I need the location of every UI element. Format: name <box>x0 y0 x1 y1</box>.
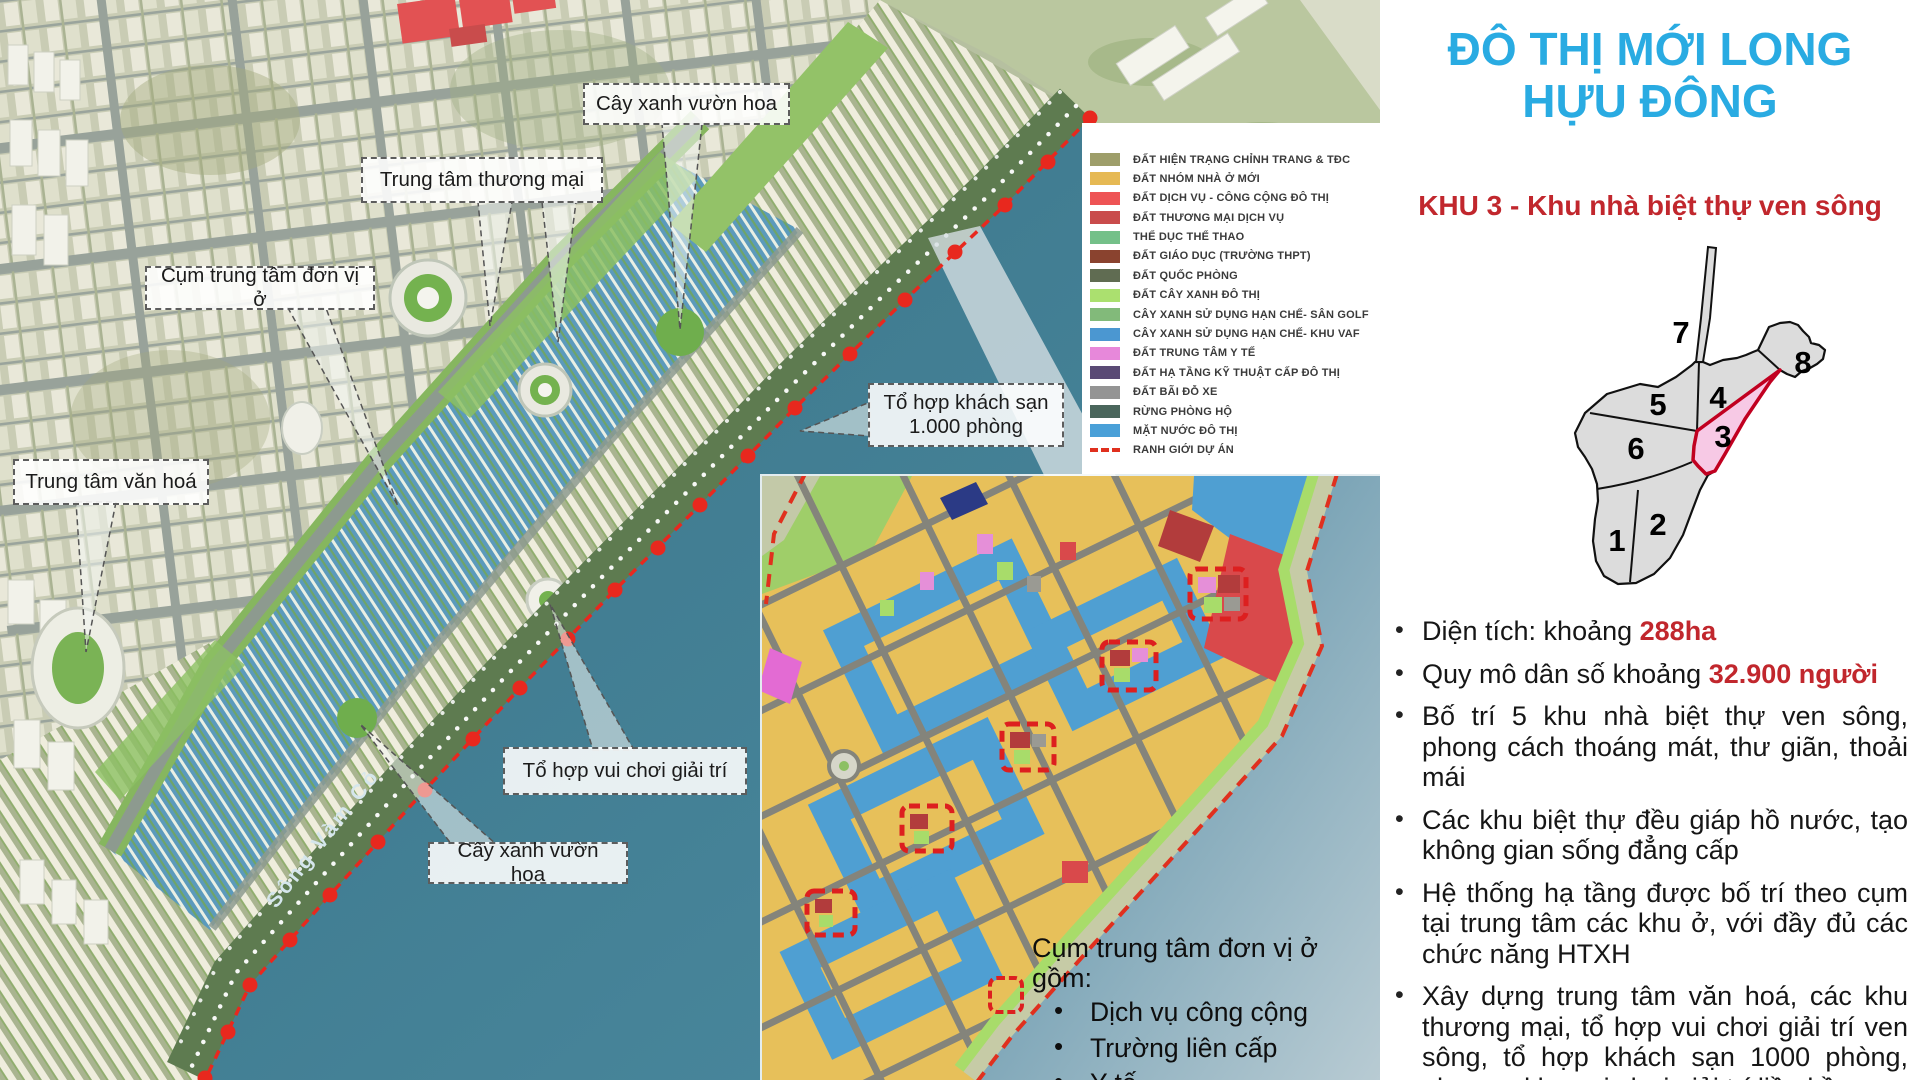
legend-swatch <box>1090 386 1120 399</box>
legend-item: ĐẤT DỊCH VỤ - CÔNG CỘNG ĐÔ THỊ <box>1090 192 1374 205</box>
legend-swatch <box>1090 347 1120 360</box>
svg-text:1: 1 <box>1608 523 1625 558</box>
bullet-item: Xây dựng trung tâm văn hoá, các khu thươ… <box>1388 981 1908 1080</box>
inset-note-heading: Cụm trung tâm đơn vị ở gồm: <box>1032 934 1380 993</box>
legend-swatch <box>1090 172 1120 185</box>
legend-swatch <box>1090 231 1120 244</box>
bullet-item: Hệ thống hạ tầng được bố trí theo cụm tạ… <box>1388 878 1908 970</box>
legend-item: ĐẤT GIÁO DỤC (TRƯỜNG THPT) <box>1090 250 1374 263</box>
svg-text:2: 2 <box>1649 507 1666 542</box>
bullet-item: Các khu biệt thự đều giáp hồ nước, tạo k… <box>1388 805 1908 866</box>
legend-swatch <box>1090 424 1120 437</box>
bullet-item: Diện tích: khoảng 288ha <box>1388 616 1908 647</box>
callout-entertainment: Tổ hợp vui chơi giải trí <box>503 747 747 795</box>
svg-text:6: 6 <box>1627 431 1644 466</box>
inset-note-item: Trường liên cấp <box>1032 1033 1380 1063</box>
callout-green-park-top: Cây xanh vườn hoa <box>583 83 790 125</box>
bullet-item: Bố trí 5 khu nhà biệt thự ven sông, phon… <box>1388 701 1908 793</box>
legend-item: ĐẤT HẠ TẦNG KỸ THUẬT CẤP ĐÔ THỊ <box>1090 366 1374 379</box>
legend-item: ĐẤT BÃI ĐỖ XE <box>1090 386 1374 399</box>
bullet-item: Quy mô dân số khoảng 32.900 người <box>1388 659 1908 690</box>
legend-swatch <box>1090 328 1120 341</box>
callout-green-park-bottom: Cây xanh vườn hoa <box>428 842 628 884</box>
svg-text:5: 5 <box>1649 387 1666 422</box>
unit-center-symbol-icon <box>988 976 1024 1014</box>
svg-text:3: 3 <box>1714 419 1731 454</box>
legend-swatch <box>1090 308 1120 321</box>
legend-item: ĐẤT HIỆN TRẠNG CHỈNH TRANG & TĐC <box>1090 153 1374 166</box>
inset-note-item: Dịch vụ công cộng <box>1032 997 1380 1027</box>
legend-swatch <box>1090 366 1120 379</box>
legend-item: ĐẤT QUỐC PHÒNG <box>1090 269 1374 282</box>
zone-7-strip <box>1696 247 1716 362</box>
legend-item: ĐẤT NHÓM NHÀ Ở MỚI <box>1090 172 1374 185</box>
legend-item: THỂ DỤC THỂ THAO <box>1090 231 1374 244</box>
legend-item: CÂY XANH SỬ DỤNG HẠN CHẾ- KHU VAF <box>1090 328 1374 341</box>
legend-swatch <box>1090 269 1120 282</box>
svg-text:4: 4 <box>1709 380 1727 415</box>
svg-text:7: 7 <box>1672 315 1689 350</box>
legend-swatch <box>1090 211 1120 224</box>
legend-item: ĐẤT THƯƠNG MẠI DỊCH VỤ <box>1090 211 1374 224</box>
callout-culture-center: Trung tâm văn hoá <box>13 459 209 505</box>
park-circle <box>337 698 377 738</box>
legend-item: ĐẤT CÂY XANH ĐÔ THỊ <box>1090 289 1374 302</box>
subtitle: KHU 3 - Khu nhà biệt thự ven sông <box>1388 190 1912 222</box>
page-title: ĐÔ THỊ MỚI LONG HỰU ĐÔNG <box>1388 24 1912 127</box>
legend-item: CÂY XANH SỬ DỤNG HẠN CHẾ- SÂN GOLF <box>1090 308 1374 321</box>
inset-note-item: Y tế <box>1032 1068 1380 1080</box>
boundary-line-swatch <box>1090 448 1120 452</box>
legend-item: RỪNG PHÒNG HỘ <box>1090 405 1374 418</box>
callout-unit-center: Cụm trung tâm đơn vị ở <box>145 266 375 310</box>
inset-note-list: Dịch vụ công cộng Trường liên cấp Y tế B… <box>1032 997 1380 1080</box>
inset-note: Cụm trung tâm đơn vị ở gồm: Dịch vụ công… <box>1032 934 1380 1080</box>
legend-swatch <box>1090 250 1120 263</box>
slide: Sông Vàm Cỏ Cây xanh vườn hoa Trung tâm … <box>0 0 1920 1080</box>
zone-diagram: 1 2 3 4 5 6 7 8 <box>1540 218 1920 618</box>
legend-swatch <box>1090 192 1120 205</box>
callout-hotel: Tổ hợp khách sạn 1.000 phòng <box>868 383 1064 447</box>
callout-commercial-center: Trung tâm thương mại <box>361 157 603 203</box>
svg-text:8: 8 <box>1794 345 1811 380</box>
legend-item: RANH GIỚI DỰ ÁN <box>1090 444 1374 456</box>
legend-item: MẶT NƯỚC ĐÔ THỊ <box>1090 424 1374 437</box>
legend-swatch <box>1090 153 1120 166</box>
legend-swatch <box>1090 405 1120 418</box>
legend-panel: ĐẤT HIỆN TRẠNG CHỈNH TRANG & TĐC ĐẤT NHÓ… <box>1082 123 1380 474</box>
legend-swatch <box>1090 289 1120 302</box>
legend-item: ĐẤT TRUNG TÂM Y TẾ <box>1090 347 1374 360</box>
bullet-list: Diện tích: khoảng 288ha Quy mô dân số kh… <box>1388 616 1908 1080</box>
